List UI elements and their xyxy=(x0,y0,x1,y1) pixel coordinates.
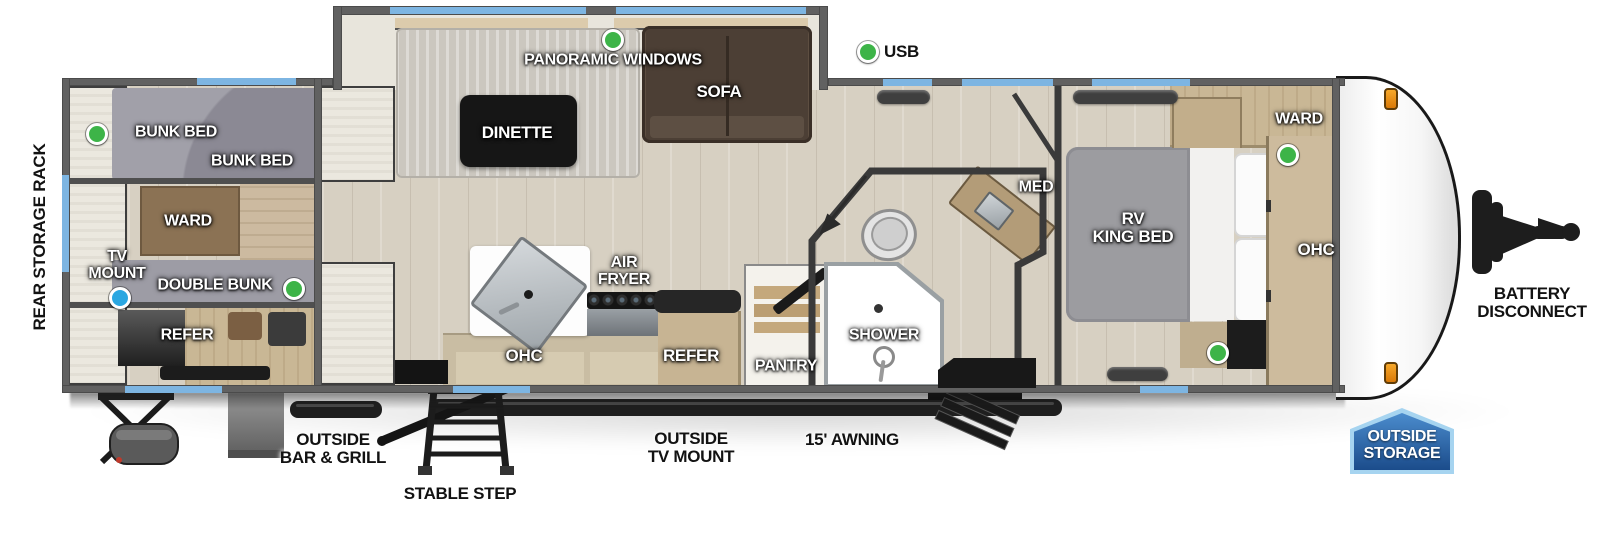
window-bedroom-bottom xyxy=(1140,386,1188,393)
rear-counter-bar xyxy=(160,366,270,380)
outside-bar-grill-label: OUTSIDE BAR & GRILL xyxy=(280,431,386,467)
kitchen-cabinet-panel-2 xyxy=(590,352,660,384)
outside-tv-mount-label: OUTSIDE TV MOUNT xyxy=(648,430,734,466)
air-fryer-label: AIR FRYER xyxy=(598,255,650,289)
slideout-left-wall xyxy=(333,6,342,90)
slideout-right-wall xyxy=(819,6,828,90)
usb-marker-ward-bedroom xyxy=(1277,144,1299,166)
usb-marker-double-bunk xyxy=(283,278,305,300)
sofa-label: SOFA xyxy=(696,83,741,101)
ohc-hinge-1 xyxy=(1266,200,1271,212)
front-cap-rear-wall xyxy=(1332,78,1340,393)
kitchen-sink-drain xyxy=(524,290,533,299)
bunk-bed-lower-label: BUNK BED xyxy=(211,154,293,171)
outside-storage-badge-label: OUTSIDE STORAGE xyxy=(1364,429,1441,463)
connector-wall-upper xyxy=(322,86,395,182)
marker-light-top xyxy=(1384,88,1398,110)
rear-storage-rack-label: REAR STORAGE RACK xyxy=(30,143,50,330)
rear-cooktop xyxy=(268,312,306,346)
kitchen-refer-label: REFER xyxy=(663,347,719,365)
tv-mount-marker xyxy=(109,287,131,309)
window-rear-top xyxy=(197,78,296,85)
island-refer-top xyxy=(654,290,741,313)
overhead-bar-bedroom-top xyxy=(1073,90,1178,104)
window-rear-bottom xyxy=(125,386,222,393)
window-bedroom-top xyxy=(1092,79,1190,86)
rear-wall-line-b xyxy=(70,302,314,308)
overhead-bar-bedroom-bottom xyxy=(1107,367,1168,381)
med-label: MED xyxy=(1019,180,1054,197)
double-bunk-label: DOUBLE BUNK xyxy=(158,278,273,295)
dinette-label: DINETTE xyxy=(482,124,553,142)
rear-sink xyxy=(228,312,262,340)
range-cooktop xyxy=(587,292,660,309)
rear-ward-label: WARD xyxy=(164,214,212,231)
ohc-hinge-2 xyxy=(1266,290,1271,302)
panoramic-windows-label: PANORAMIC WINDOWS xyxy=(524,53,702,70)
rear-bunk-floor-strip xyxy=(240,184,314,260)
connector-wall-lower xyxy=(322,262,395,385)
bedroom-ohc-label: OHC xyxy=(1298,241,1335,259)
rv-king-bed-label: RV KING BED xyxy=(1093,210,1174,246)
pantry-label: PANTRY xyxy=(755,359,817,376)
stable-step-label: STABLE STEP xyxy=(404,485,517,503)
bunk-bed-upper-label: BUNK BED xyxy=(135,125,217,142)
bedroom-ward-doors xyxy=(1172,97,1242,148)
window-main-top-2 xyxy=(962,79,1053,86)
rv-floorplan: REAR STORAGE RACK BUNK BED BUNK BED WARD… xyxy=(0,0,1600,548)
shower-label: SHOWER xyxy=(849,328,919,345)
window-slide-right xyxy=(616,7,806,14)
front-cap xyxy=(1336,76,1461,400)
marker-light-bottom xyxy=(1384,362,1398,384)
rear-room-right-wall xyxy=(314,78,322,393)
pantry-shelf-3 xyxy=(754,322,820,333)
overhead-bar-living xyxy=(877,90,930,104)
window-rear-left xyxy=(62,175,69,272)
range-body xyxy=(587,309,660,336)
window-kitchen-bottom xyxy=(453,386,530,393)
entry-landing xyxy=(938,358,1036,388)
usb-marker-panoramic xyxy=(602,29,624,51)
body-shadow xyxy=(70,392,1345,409)
rear-wall-line-a xyxy=(70,178,314,184)
battery-disconnect-label: BATTERY DISCONNECT xyxy=(1477,285,1586,321)
usb-marker-bedside xyxy=(1207,342,1229,364)
bedroom-dresser xyxy=(1227,320,1271,369)
awning-label: 15' AWNING xyxy=(805,431,899,449)
usb-marker-bunk xyxy=(86,123,108,145)
rear-refer-label: REFER xyxy=(161,328,214,345)
tv-mount-label: TV MOUNT xyxy=(88,249,145,283)
usb-legend-marker xyxy=(857,41,879,63)
usb-legend-label: USB xyxy=(884,43,919,61)
shower-drain xyxy=(874,304,883,313)
window-slide-left xyxy=(390,7,586,14)
hitch xyxy=(1472,190,1580,274)
window-main-top-1 xyxy=(883,79,932,86)
king-bed-runner xyxy=(1190,148,1234,321)
bedroom-ward-label: WARD xyxy=(1275,112,1323,129)
kitchen-ohc-label: OHC xyxy=(506,347,543,365)
